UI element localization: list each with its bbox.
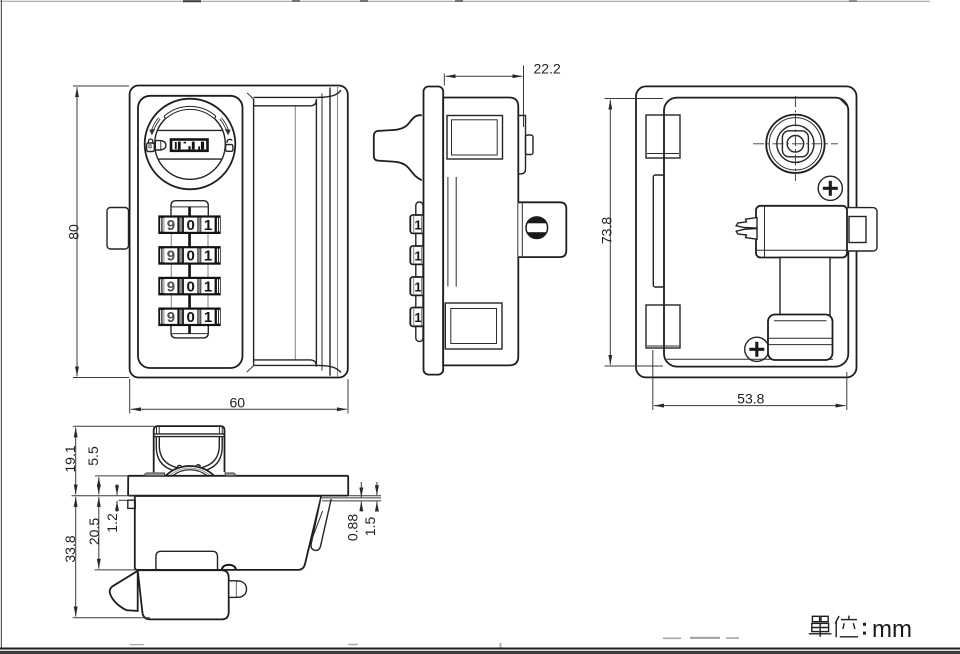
svg-text:9: 9 xyxy=(167,248,175,265)
svg-text:0: 0 xyxy=(187,278,195,295)
svg-text:9: 9 xyxy=(167,217,175,234)
svg-text:60: 60 xyxy=(230,394,246,410)
svg-text:1: 1 xyxy=(414,310,421,325)
svg-text:73.8: 73.8 xyxy=(598,217,614,244)
svg-text:1.2: 1.2 xyxy=(104,513,120,533)
svg-text:1: 1 xyxy=(414,280,421,295)
svg-text:1: 1 xyxy=(204,217,212,234)
svg-text:1: 1 xyxy=(204,248,212,265)
svg-text:1: 1 xyxy=(204,278,212,295)
svg-text:1: 1 xyxy=(204,309,212,326)
svg-text:53.8: 53.8 xyxy=(737,391,764,407)
svg-text:80: 80 xyxy=(65,224,81,240)
svg-text:20.5: 20.5 xyxy=(86,518,102,545)
svg-text:9: 9 xyxy=(167,309,175,326)
svg-text:0: 0 xyxy=(187,309,195,326)
svg-text:9: 9 xyxy=(167,278,175,295)
svg-text:1.5: 1.5 xyxy=(362,517,378,537)
svg-text:mm: mm xyxy=(872,616,912,643)
svg-text:1: 1 xyxy=(414,218,421,233)
svg-text:5.5: 5.5 xyxy=(85,446,101,466)
svg-text:22.2: 22.2 xyxy=(534,61,561,77)
svg-text:0: 0 xyxy=(187,217,195,234)
svg-text:33.8: 33.8 xyxy=(62,535,78,562)
svg-text:1: 1 xyxy=(414,249,421,264)
svg-text:0: 0 xyxy=(187,248,195,265)
svg-text:19.1: 19.1 xyxy=(62,445,78,472)
svg-text:0.88: 0.88 xyxy=(345,514,361,541)
